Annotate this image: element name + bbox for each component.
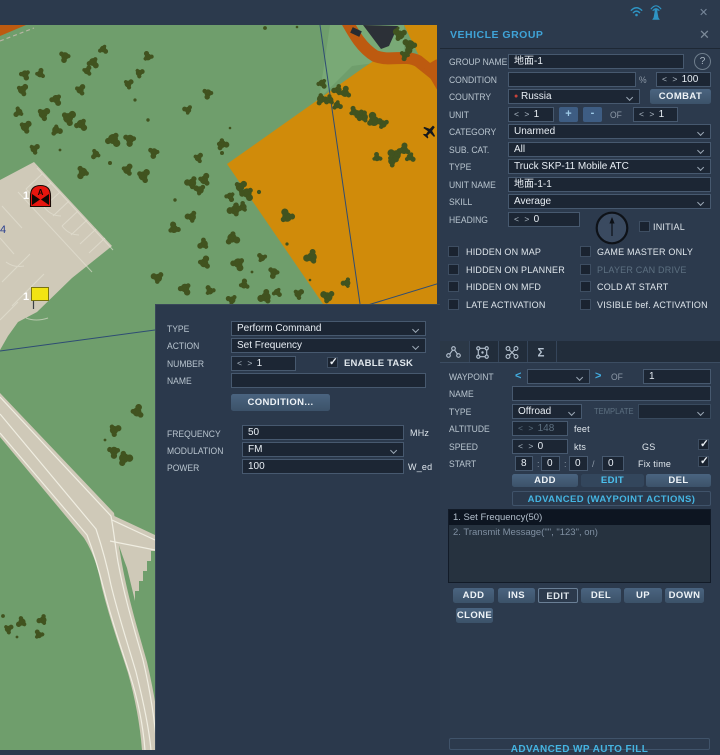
svg-text:1: 1 [23,190,29,202]
svg-text:A: A [38,188,44,197]
svg-text:1: 1 [23,291,29,303]
svg-text:Σ: Σ [538,348,545,360]
svg-text:4: 4 [0,224,6,236]
